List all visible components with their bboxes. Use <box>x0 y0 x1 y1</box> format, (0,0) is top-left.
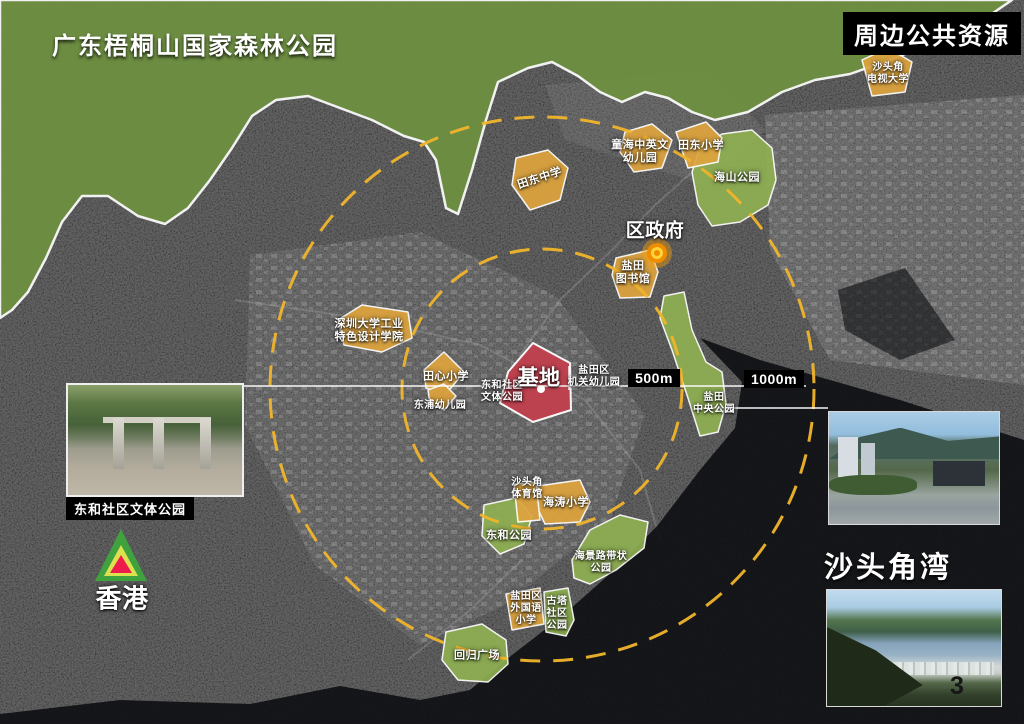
distance-label-500m: 500m <box>628 369 680 387</box>
forest-park-title: 广东梧桐山国家森林公园 <box>52 26 338 61</box>
page-number: 3 <box>950 672 964 701</box>
photo-donghe-community-park <box>66 383 244 497</box>
distance-label-1000m: 1000m <box>744 370 804 388</box>
guta-community-park-area <box>544 588 574 636</box>
photo-building <box>861 443 875 474</box>
slide-surrounding-public-resources: 东和社区文体公园 广东梧桐山国家森林公园 周边公共资源 沙头角湾 500m 10… <box>0 0 1024 724</box>
haitao-primary-area <box>536 480 590 524</box>
photo-pillar <box>153 418 163 469</box>
photo-trees <box>829 475 917 495</box>
photo-pillar <box>113 418 123 469</box>
government-marker-icon <box>642 238 672 268</box>
photo-foreground-mountain <box>827 590 1001 706</box>
photo-shatoujiao-bay-park <box>828 411 1000 525</box>
photo-caption-donghe-park: 东和社区文体公园 <box>66 497 194 520</box>
yantian-foreign-primary-area <box>506 588 544 630</box>
bay-title: 沙头角湾 <box>824 544 952 586</box>
site-dot <box>537 385 545 393</box>
photo-building <box>838 437 858 477</box>
shatoujiao-gym-area <box>514 482 540 522</box>
slide-header: 周边公共资源 <box>843 12 1021 55</box>
photo-shatoujiao-bay-aerial <box>826 589 1002 707</box>
photo-building <box>933 461 986 486</box>
photo-pillar <box>200 418 210 469</box>
